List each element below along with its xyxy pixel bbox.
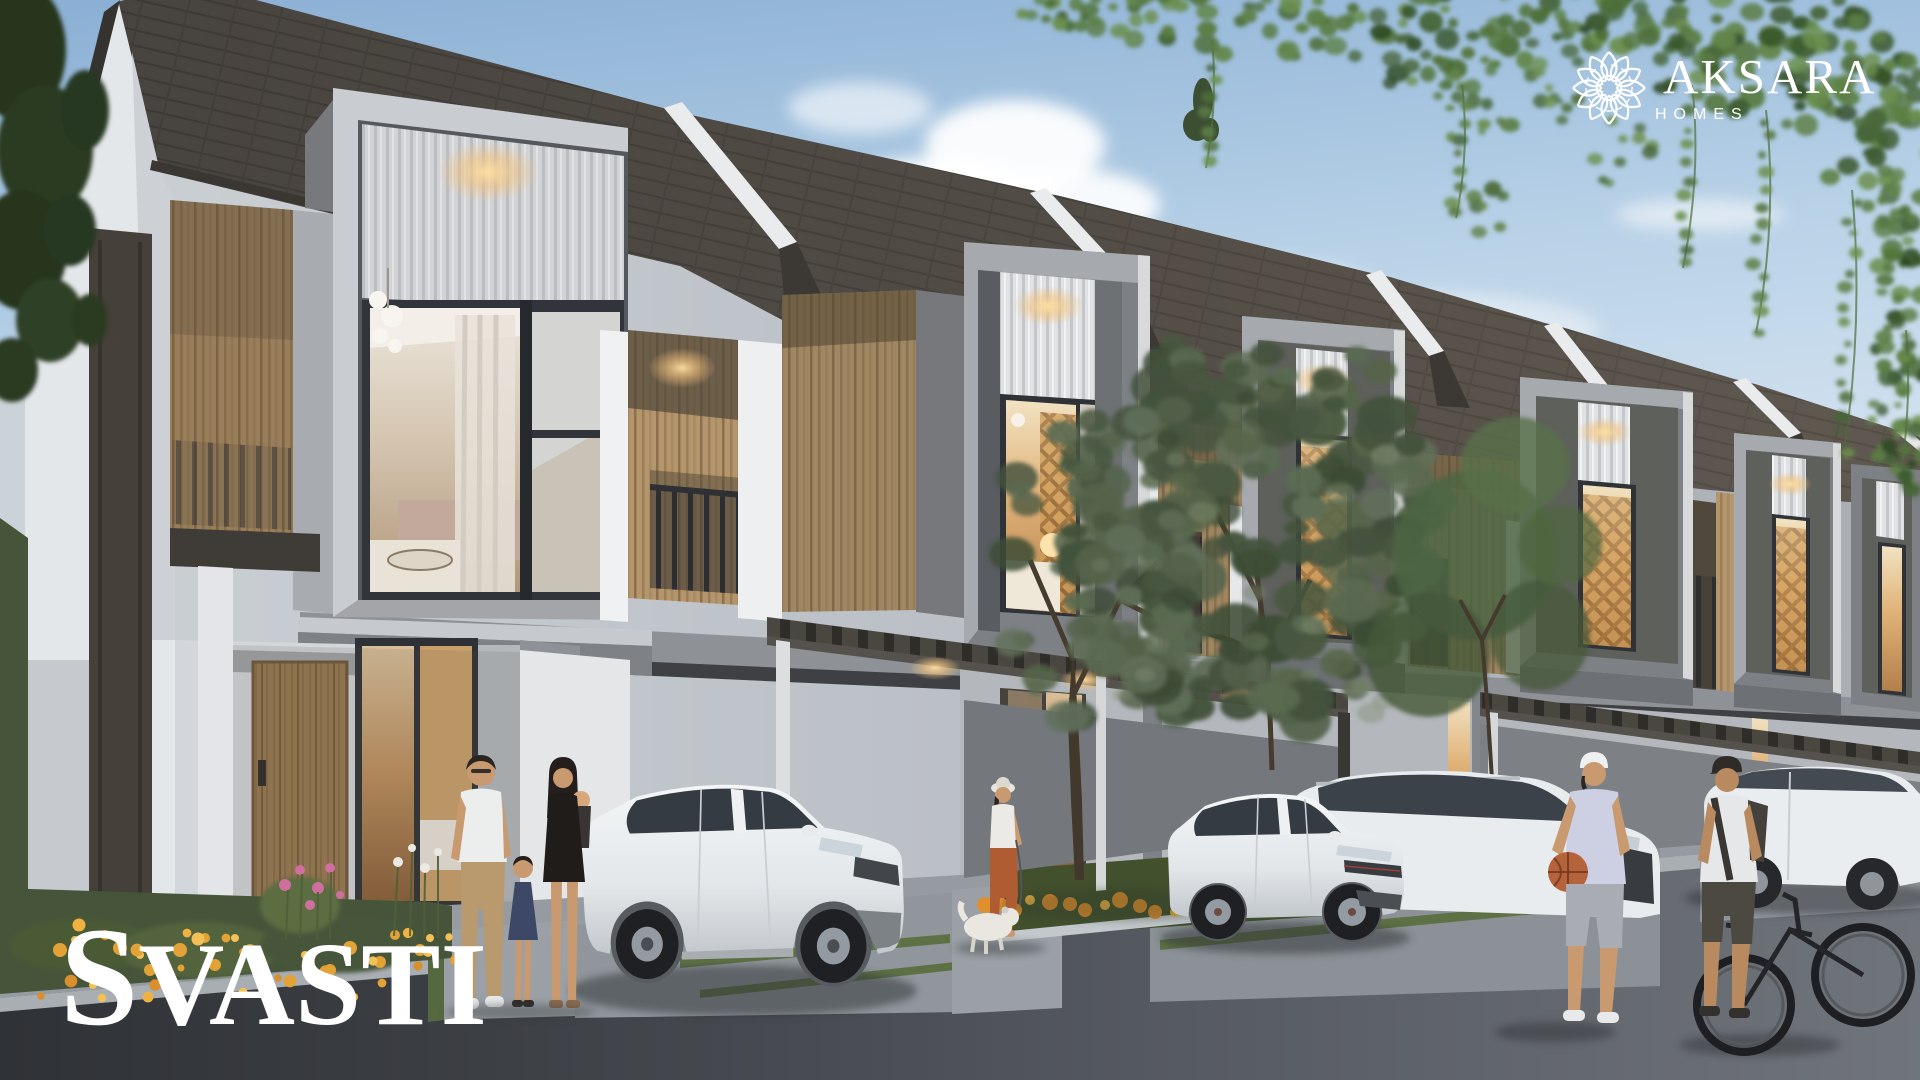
svg-text:HOMES: HOMES (1655, 106, 1749, 123)
svg-text:AKSARA: AKSARA (1663, 49, 1876, 104)
svg-text:SVASTI: SVASTI (60, 899, 487, 1055)
